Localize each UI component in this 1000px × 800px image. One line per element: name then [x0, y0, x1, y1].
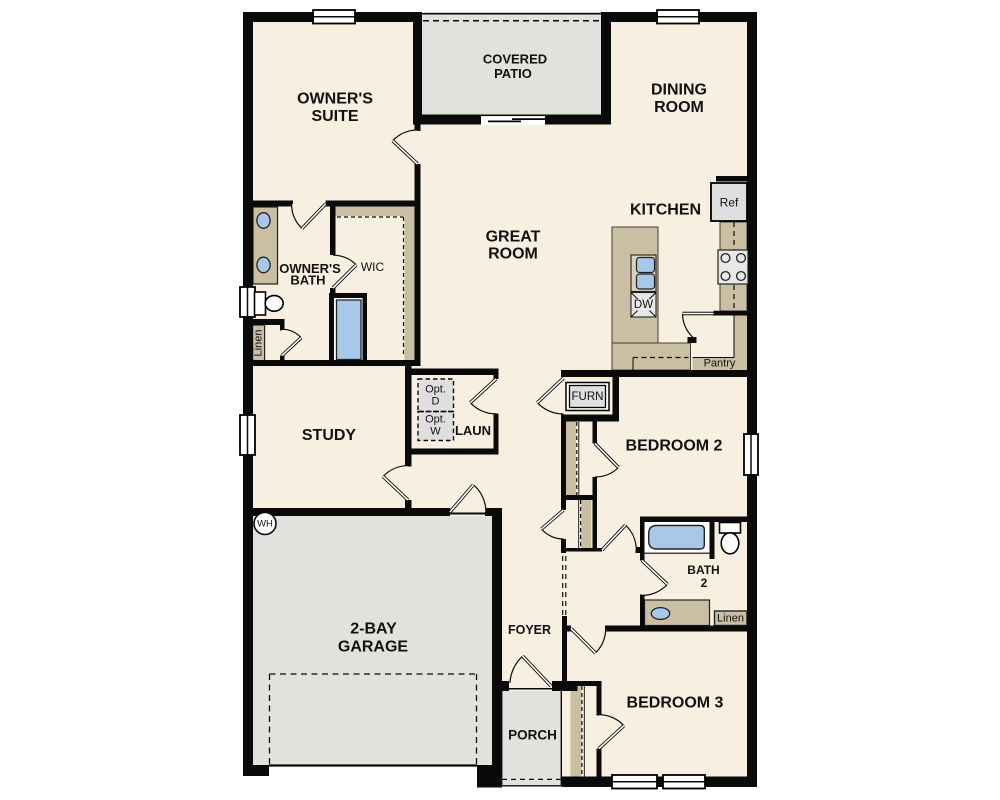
svg-text:Linen: Linen	[253, 330, 265, 357]
svg-text:WIC: WIC	[361, 260, 385, 274]
svg-text:2-BAY: 2-BAY	[350, 621, 397, 638]
svg-text:OWNER'S: OWNER'S	[297, 91, 373, 108]
svg-text:D: D	[432, 396, 440, 408]
svg-text:Linen: Linen	[717, 613, 744, 625]
svg-text:GARAGE: GARAGE	[338, 639, 409, 656]
svg-text:BATH: BATH	[290, 273, 325, 288]
svg-text:Opt.: Opt.	[425, 414, 446, 426]
svg-text:BEDROOM 2: BEDROOM 2	[626, 438, 723, 455]
svg-text:ROOM: ROOM	[654, 99, 704, 116]
svg-text:DW: DW	[634, 299, 653, 311]
svg-text:GREAT: GREAT	[486, 229, 541, 246]
svg-text:Pantry: Pantry	[704, 358, 736, 370]
svg-text:PATIO: PATIO	[494, 66, 532, 81]
svg-text:DINING: DINING	[651, 82, 707, 99]
svg-text:Opt.: Opt.	[425, 384, 446, 396]
svg-text:LAUN: LAUN	[455, 423, 491, 438]
svg-text:2: 2	[701, 576, 708, 590]
svg-text:PORCH: PORCH	[508, 728, 557, 743]
svg-text:STUDY: STUDY	[302, 427, 357, 444]
svg-text:KITCHEN: KITCHEN	[630, 202, 701, 219]
svg-text:COVERED: COVERED	[483, 52, 547, 67]
svg-text:FOYER: FOYER	[508, 623, 551, 637]
svg-text:WH: WH	[257, 518, 273, 529]
svg-text:BEDROOM 3: BEDROOM 3	[627, 695, 724, 712]
svg-text:FURN: FURN	[572, 391, 604, 403]
svg-text:Ref: Ref	[720, 196, 739, 210]
svg-text:ROOM: ROOM	[488, 246, 538, 263]
svg-text:W: W	[430, 426, 441, 438]
svg-text:SUITE: SUITE	[311, 108, 358, 125]
svg-text:BATH: BATH	[687, 563, 719, 577]
